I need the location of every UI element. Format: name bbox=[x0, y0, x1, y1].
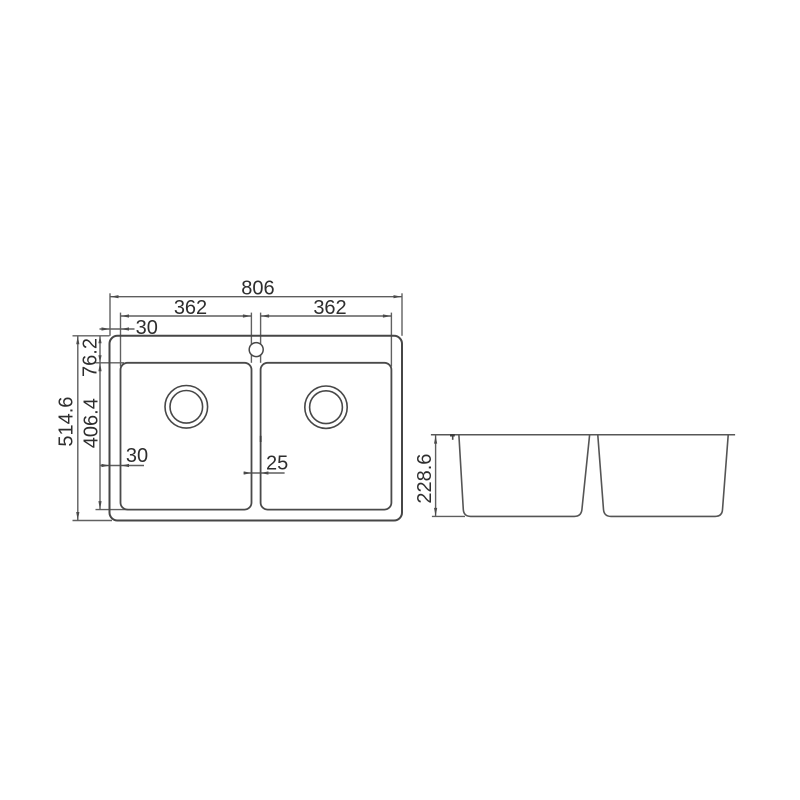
svg-text:228.6: 228.6 bbox=[414, 454, 436, 504]
svg-text:362: 362 bbox=[313, 297, 346, 319]
svg-text:406.4: 406.4 bbox=[81, 398, 103, 448]
svg-text:25: 25 bbox=[266, 452, 288, 474]
svg-text:76.2: 76.2 bbox=[80, 338, 102, 377]
svg-text:30: 30 bbox=[126, 445, 148, 467]
svg-text:362: 362 bbox=[174, 297, 207, 319]
svg-text:806: 806 bbox=[241, 277, 274, 299]
svg-text:514.6: 514.6 bbox=[55, 397, 77, 447]
svg-text:30: 30 bbox=[136, 317, 158, 339]
